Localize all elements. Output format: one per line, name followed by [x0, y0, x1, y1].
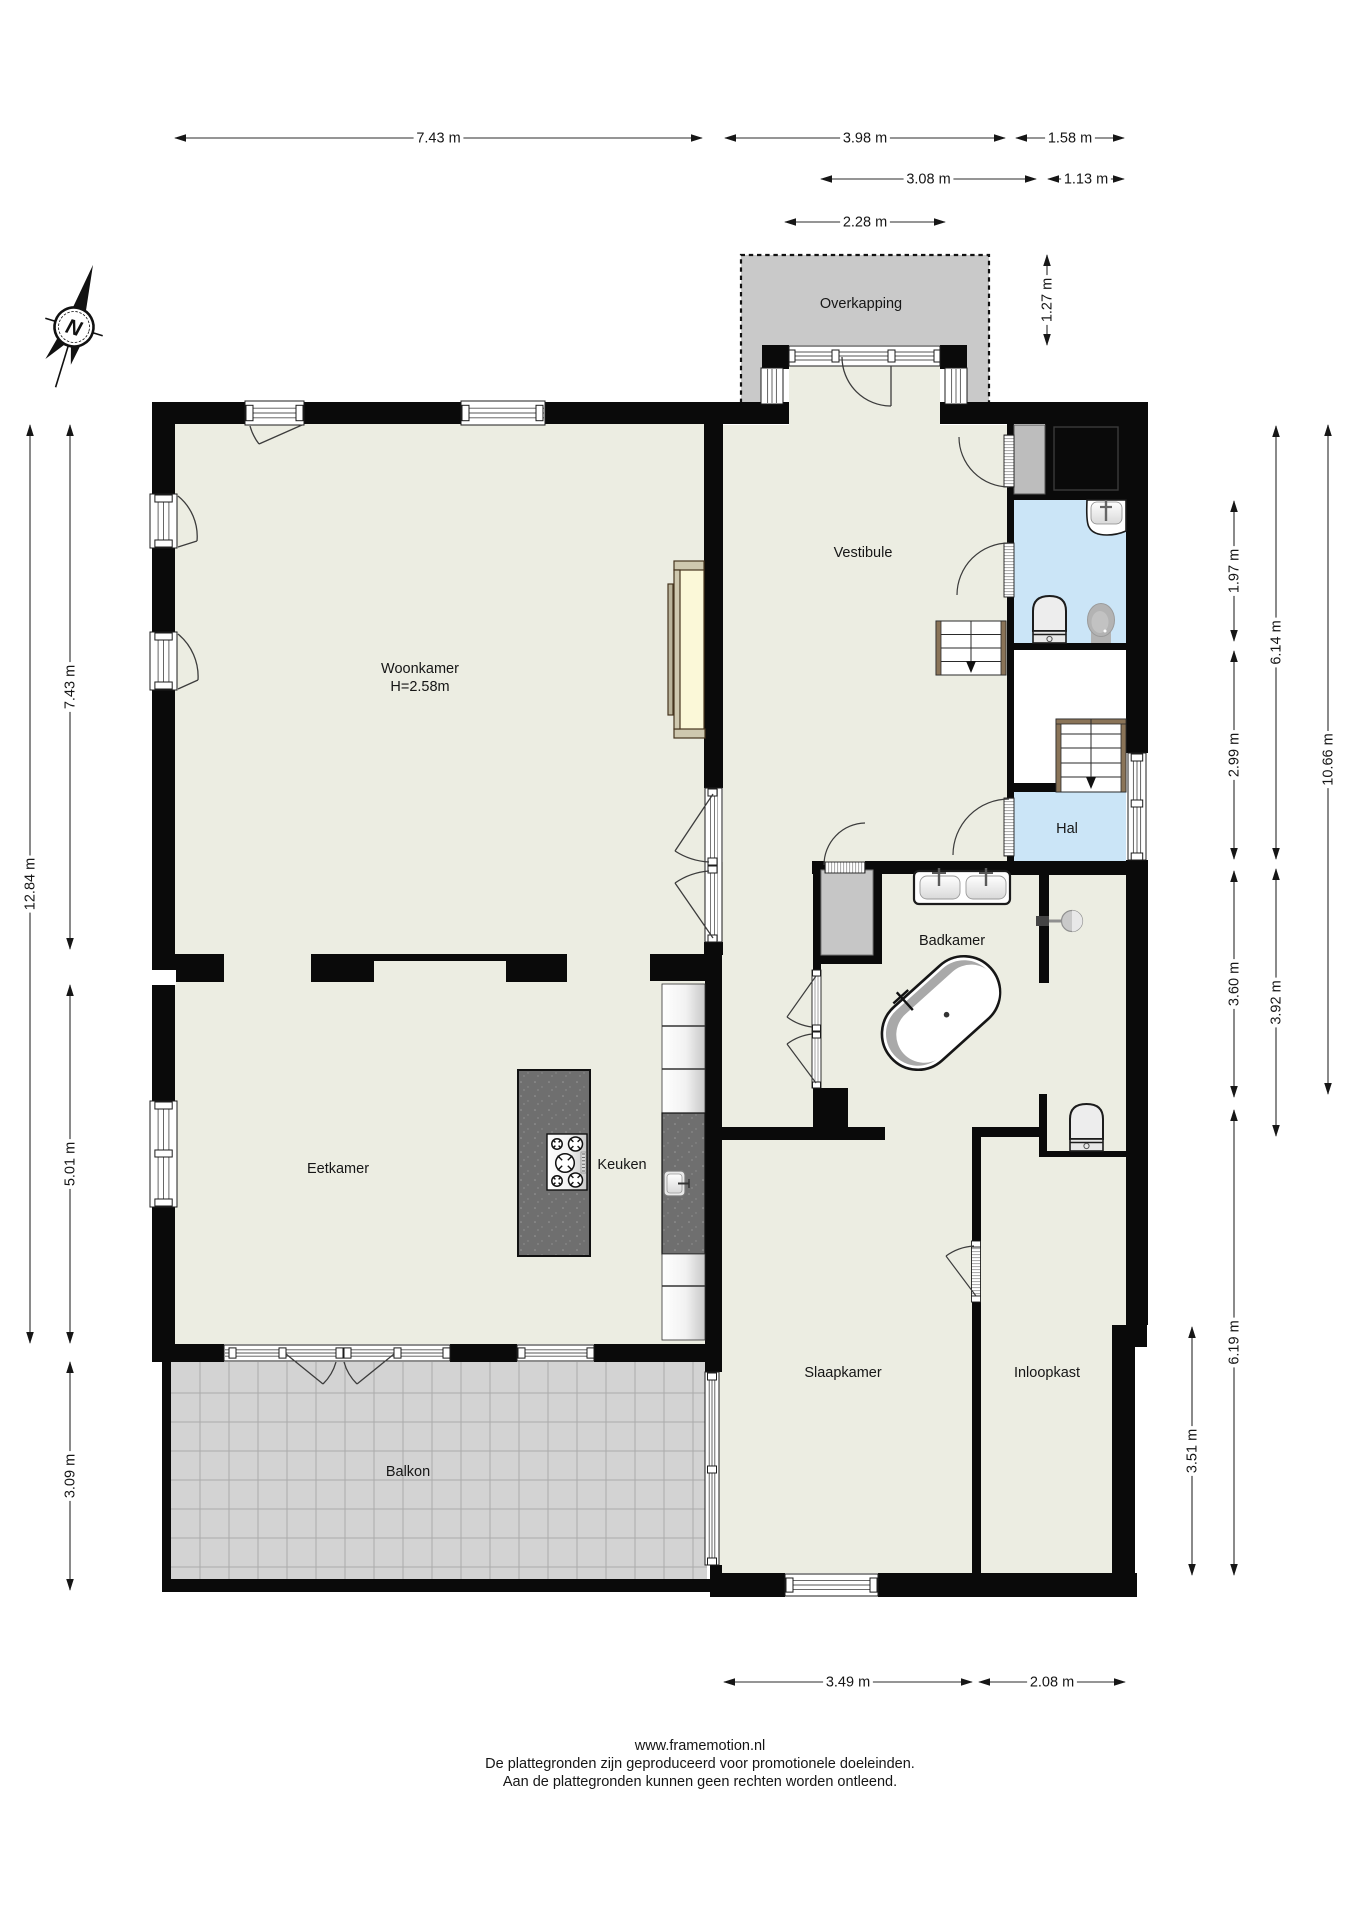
svg-text:Slaapkamer: Slaapkamer: [804, 1365, 882, 1381]
svg-text:6.19 m: 6.19 m: [1227, 1320, 1243, 1364]
svg-text:1.13 m: 1.13 m: [1064, 172, 1108, 188]
svg-text:7.43 m: 7.43 m: [63, 665, 79, 709]
svg-text:Hal: Hal: [1056, 821, 1078, 837]
svg-text:2.08 m: 2.08 m: [1030, 1675, 1074, 1691]
svg-text:3.92 m: 3.92 m: [1269, 980, 1285, 1024]
svg-text:3.08 m: 3.08 m: [906, 172, 950, 188]
svg-text:7.43 m: 7.43 m: [416, 131, 460, 147]
svg-text:Woonkamer: Woonkamer: [381, 661, 459, 677]
svg-text:Keuken: Keuken: [597, 1157, 646, 1173]
svg-text:Eetkamer: Eetkamer: [307, 1161, 369, 1177]
svg-text:Aan de plattegronden kunnen ge: Aan de plattegronden kunnen geen rechten…: [503, 1774, 897, 1790]
svg-text:3.98 m: 3.98 m: [843, 131, 887, 147]
svg-text:3.51 m: 3.51 m: [1185, 1429, 1201, 1473]
svg-text:1.58 m: 1.58 m: [1048, 131, 1092, 147]
svg-text:Balkon: Balkon: [386, 1464, 430, 1480]
svg-text:Overkapping: Overkapping: [820, 296, 902, 312]
svg-text:De plattegronden zijn geproduc: De plattegronden zijn geproduceerd voor …: [485, 1756, 915, 1772]
svg-text:3.49 m: 3.49 m: [826, 1675, 870, 1691]
svg-text:10.66 m: 10.66 m: [1321, 733, 1337, 785]
svg-text:H=2.58m: H=2.58m: [390, 679, 449, 695]
svg-text:5.01 m: 5.01 m: [63, 1142, 79, 1186]
svg-text:1.27 m: 1.27 m: [1040, 278, 1056, 322]
svg-text:www.framemotion.nl: www.framemotion.nl: [634, 1738, 766, 1754]
svg-text:6.14 m: 6.14 m: [1269, 620, 1285, 664]
svg-text:3.60 m: 3.60 m: [1227, 962, 1243, 1006]
svg-text:2.28 m: 2.28 m: [843, 215, 887, 231]
svg-text:2.99 m: 2.99 m: [1227, 733, 1243, 777]
svg-text:Badkamer: Badkamer: [919, 933, 985, 949]
svg-text:Vestibule: Vestibule: [834, 545, 893, 561]
svg-text:3.09 m: 3.09 m: [63, 1454, 79, 1498]
svg-text:12.84 m: 12.84 m: [23, 858, 39, 910]
svg-text:1.97 m: 1.97 m: [1227, 549, 1243, 593]
svg-text:Inloopkast: Inloopkast: [1014, 1365, 1080, 1381]
